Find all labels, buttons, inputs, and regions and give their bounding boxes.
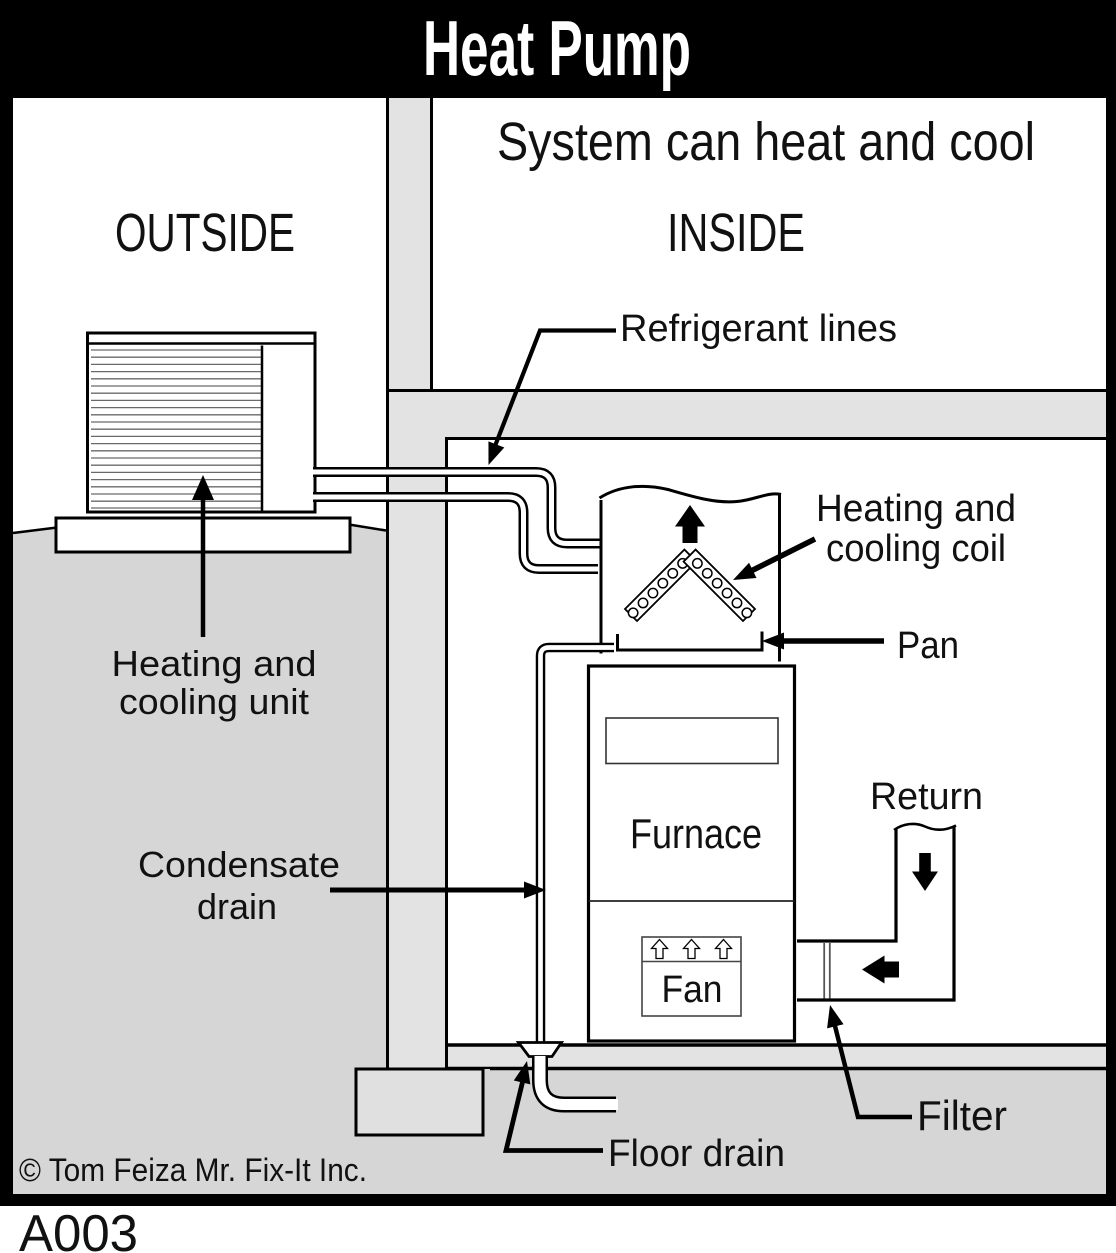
svg-text:INSIDE: INSIDE (667, 203, 805, 263)
svg-text:A003: A003 (19, 1205, 138, 1253)
svg-text:Return: Return (870, 776, 983, 818)
svg-text:Floor drain: Floor drain (608, 1133, 785, 1175)
svg-text:Filter: Filter (917, 1092, 1007, 1139)
svg-text:OUTSIDE: OUTSIDE (115, 203, 295, 263)
svg-text:Fan: Fan (662, 969, 723, 1011)
svg-text:Refrigerant lines: Refrigerant lines (620, 308, 897, 350)
svg-text:Pan: Pan (897, 625, 959, 667)
svg-text:Heat Pump: Heat Pump (423, 4, 691, 92)
svg-text:© Tom Feiza Mr. Fix-It Inc.: © Tom Feiza Mr. Fix-It Inc. (19, 1152, 367, 1188)
svg-text:cooling unit: cooling unit (119, 681, 309, 722)
svg-text:System can heat and cool: System can heat and cool (497, 112, 1035, 172)
svg-text:cooling coil: cooling coil (826, 528, 1006, 570)
svg-text:Condensate: Condensate (138, 844, 340, 885)
svg-text:Heating and: Heating and (112, 643, 317, 684)
svg-text:Furnace: Furnace (630, 810, 762, 857)
svg-text:Heating and: Heating and (816, 488, 1016, 530)
svg-text:drain: drain (197, 886, 277, 927)
